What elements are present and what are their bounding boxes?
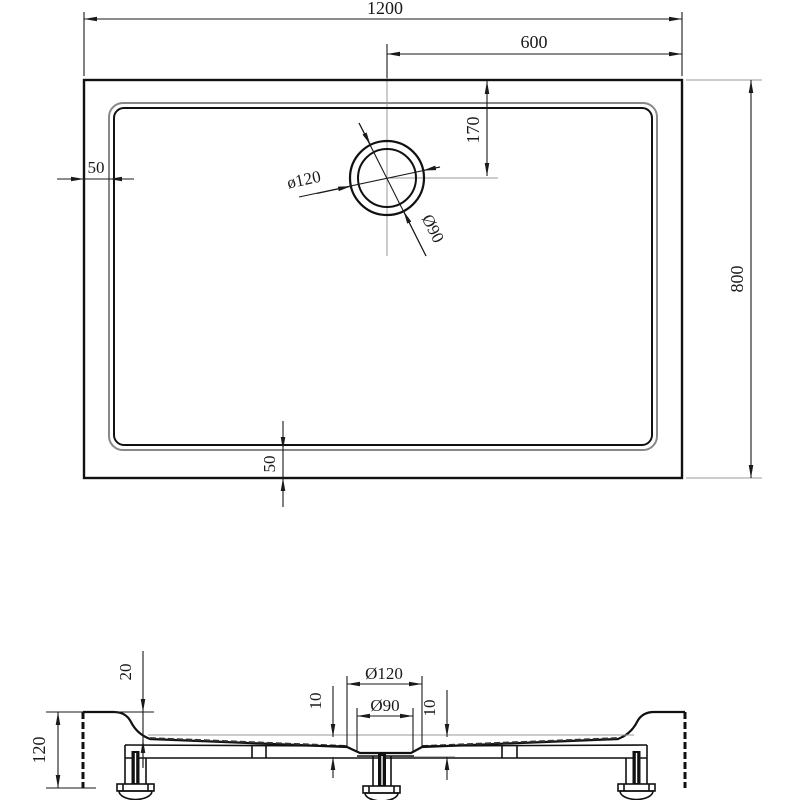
tray-rim-inner-line	[114, 108, 652, 445]
section-view: 120 20 Ø120 Ø90 10	[29, 651, 685, 800]
dim-drain-outer-dia-label: ø120	[285, 167, 322, 193]
foot-center	[363, 754, 400, 800]
shower-tray-drawing: 1200 600 170 50 50	[0, 0, 800, 800]
technical-drawing-page: 1200 600 170 50 50	[0, 0, 800, 800]
dim-rim-inset-bottom-label: 50	[260, 456, 279, 473]
plan-view: 1200 600 170 50 50	[57, 0, 762, 507]
dim-drain-to-right-label: 600	[521, 32, 548, 52]
dim-height-total-label: 800	[727, 266, 747, 293]
dim-total-height-label: 120	[29, 737, 49, 764]
tray-rim-outer-line	[109, 103, 657, 450]
dim-rim-height-label: 20	[116, 664, 135, 681]
dim-height-total	[686, 80, 762, 478]
dim-width-total	[84, 12, 682, 76]
dim-drain-inner-dia	[359, 123, 426, 256]
dim-rim-inset-left-label: 50	[88, 158, 105, 177]
dim-recess-depth-right-label: 10	[420, 700, 439, 717]
dim-drain-inner-dia-label: Ø90	[418, 211, 448, 246]
dim-drain-from-top-label: 170	[463, 117, 483, 144]
dim-recess-depth-left-label: 10	[306, 693, 325, 710]
tray-outer-edge	[84, 80, 682, 478]
dim-section-drain-outer-label: Ø120	[365, 664, 403, 683]
tray-section-profile	[83, 712, 685, 753]
dim-width-total-label: 1200	[367, 0, 403, 18]
dim-total-height	[46, 712, 96, 788]
dim-section-drain-inner-label: Ø90	[370, 696, 399, 715]
